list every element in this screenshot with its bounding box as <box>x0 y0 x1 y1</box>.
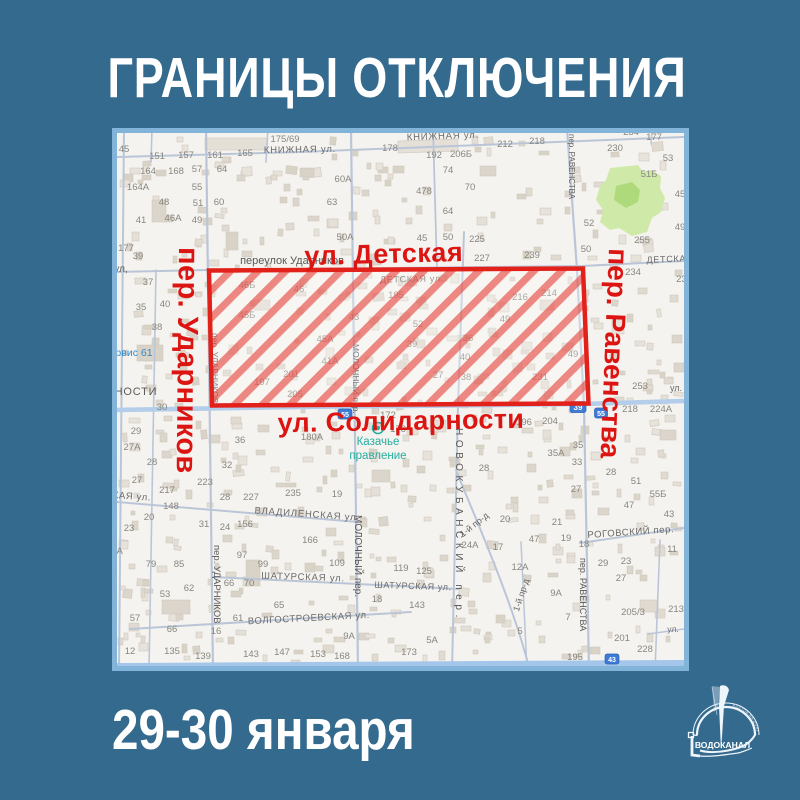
svg-text:18: 18 <box>372 594 383 605</box>
svg-text:51Б: 51Б <box>641 169 658 180</box>
svg-text:70: 70 <box>244 578 255 589</box>
svg-text:60: 60 <box>214 197 225 208</box>
svg-text:32: 32 <box>222 460 233 471</box>
svg-text:173: 173 <box>401 647 417 658</box>
svg-text:151: 151 <box>149 151 165 162</box>
svg-text:50: 50 <box>581 244 592 255</box>
svg-text:21: 21 <box>552 517 563 528</box>
svg-text:164: 164 <box>140 166 156 177</box>
svg-text:218: 218 <box>529 136 545 147</box>
svg-text:29: 29 <box>598 558 609 569</box>
svg-text:31: 31 <box>199 519 210 530</box>
svg-text:9А: 9А <box>343 631 355 642</box>
svg-text:НОВОКУБАНСКИЙ пер.: НОВОКУБАНСКИЙ пер. <box>453 428 466 622</box>
svg-text:235: 235 <box>285 488 301 499</box>
svg-text:7: 7 <box>565 612 570 623</box>
svg-text:35А: 35А <box>548 448 566 459</box>
svg-text:168: 168 <box>334 651 350 662</box>
svg-text:19: 19 <box>332 489 343 500</box>
svg-text:99: 99 <box>258 559 269 570</box>
svg-text:55Б: 55Б <box>650 489 667 500</box>
svg-text:230: 230 <box>607 143 623 154</box>
svg-text:ГРАНИЦЫ ОТКЛЮЧЕНИЯ: ГРАНИЦЫ ОТКЛЮЧЕНИЯ <box>107 46 686 109</box>
svg-text:227: 227 <box>474 253 490 264</box>
svg-text:23: 23 <box>124 523 135 534</box>
svg-text:28: 28 <box>220 492 231 503</box>
svg-text:28: 28 <box>606 467 617 478</box>
svg-text:153: 153 <box>310 649 326 660</box>
svg-text:195: 195 <box>567 652 583 663</box>
svg-text:ВОДОКАНАЛ: ВОДОКАНАЛ <box>695 740 750 750</box>
svg-text:пер. РАВЕНСТВА: пер. РАВЕНСТВА <box>578 558 588 631</box>
svg-text:37: 37 <box>143 277 154 288</box>
svg-text:33: 33 <box>572 457 583 468</box>
svg-text:27: 27 <box>571 484 582 495</box>
svg-text:НОСТИ: НОСТИ <box>115 386 158 398</box>
svg-text:ул.: ул. <box>670 383 682 393</box>
svg-text:пер. УДАРНИКОВ: пер. УДАРНИКОВ <box>211 545 222 624</box>
svg-text:45: 45 <box>119 144 130 155</box>
svg-text:178: 178 <box>382 143 398 154</box>
svg-text:224А: 224А <box>650 404 673 415</box>
svg-text:12А: 12А <box>512 562 530 573</box>
svg-text:19: 19 <box>561 533 572 544</box>
svg-text:225: 225 <box>469 234 485 245</box>
svg-text:45: 45 <box>675 189 686 200</box>
svg-text:46А: 46А <box>165 213 183 224</box>
svg-text:Казачье: Казачье <box>357 436 400 448</box>
svg-text:49: 49 <box>192 215 203 226</box>
svg-text:79: 79 <box>146 559 157 570</box>
svg-text:239: 239 <box>524 250 540 261</box>
svg-text:201: 201 <box>614 633 630 644</box>
svg-text:пер. Ударников: пер. Ударников <box>170 247 204 474</box>
svg-text:164А: 164А <box>127 182 150 193</box>
svg-text:МОЛОЧНЫЙ пер.: МОЛОЧНЫЙ пер. <box>352 515 365 597</box>
svg-text:24А: 24А <box>462 540 480 551</box>
svg-text:109: 109 <box>329 558 345 569</box>
svg-text:53: 53 <box>160 589 171 600</box>
svg-text:47: 47 <box>529 534 540 545</box>
svg-text:161: 161 <box>207 150 223 161</box>
svg-text:192: 192 <box>426 150 442 161</box>
svg-text:64: 64 <box>443 206 454 217</box>
svg-text:17: 17 <box>493 542 504 553</box>
svg-text:70: 70 <box>465 182 476 193</box>
svg-text:60А: 60А <box>335 174 353 185</box>
svg-text:253: 253 <box>632 381 648 392</box>
svg-text:135: 135 <box>164 646 180 657</box>
svg-text:206Б: 206Б <box>450 149 472 160</box>
svg-text:228: 228 <box>637 644 653 655</box>
svg-text:255: 255 <box>634 235 650 246</box>
svg-text:43: 43 <box>608 657 616 664</box>
svg-text:20: 20 <box>144 512 155 523</box>
svg-text:27: 27 <box>616 573 627 584</box>
svg-text:ул. Детская: ул. Детская <box>304 237 463 271</box>
svg-text:36: 36 <box>235 435 246 446</box>
svg-text:9А: 9А <box>550 588 562 599</box>
svg-text:40: 40 <box>160 299 171 310</box>
svg-text:16: 16 <box>211 626 222 637</box>
svg-text:166: 166 <box>302 535 318 546</box>
svg-text:28: 28 <box>147 457 158 468</box>
svg-text:74: 74 <box>443 165 454 176</box>
svg-text:29: 29 <box>131 426 142 437</box>
svg-text:204: 204 <box>542 416 558 427</box>
svg-text:38: 38 <box>152 322 163 333</box>
svg-text:КНИЖНАЯ ул.: КНИЖНАЯ ул. <box>264 144 336 156</box>
svg-text:27А: 27А <box>124 442 142 453</box>
svg-text:41: 41 <box>136 215 147 226</box>
svg-text:5А: 5А <box>426 635 438 646</box>
svg-text:35: 35 <box>136 302 147 313</box>
svg-text:52: 52 <box>584 218 595 229</box>
svg-text:177: 177 <box>646 132 662 143</box>
svg-text:66: 66 <box>167 624 178 635</box>
svg-text:ул. Солидарности: ул. Солидарности <box>277 404 524 438</box>
svg-text:53: 53 <box>663 153 674 164</box>
svg-text:48: 48 <box>159 197 170 208</box>
svg-text:139: 139 <box>195 651 211 662</box>
svg-text:143: 143 <box>243 649 259 660</box>
svg-text:55: 55 <box>192 182 203 193</box>
svg-text:478: 478 <box>416 186 432 197</box>
svg-text:157: 157 <box>178 150 194 161</box>
svg-text:43: 43 <box>664 509 675 520</box>
svg-text:28: 28 <box>479 463 490 474</box>
svg-text:156: 156 <box>237 519 253 530</box>
svg-text:119: 119 <box>393 563 408 574</box>
svg-text:205/3: 205/3 <box>621 607 645 618</box>
svg-text:рвис 61: рвис 61 <box>115 347 152 359</box>
svg-text:97: 97 <box>237 550 248 561</box>
svg-text:177: 177 <box>118 243 134 254</box>
svg-text:49: 49 <box>675 222 686 233</box>
svg-text:35: 35 <box>573 440 584 451</box>
svg-text:66: 66 <box>224 578 235 589</box>
svg-text:212: 212 <box>497 139 513 150</box>
svg-text:27: 27 <box>132 475 143 486</box>
svg-text:5: 5 <box>517 626 522 637</box>
svg-text:пер. РАВЕНСТВА: пер. РАВЕНСТВА <box>567 134 576 200</box>
svg-text:57: 57 <box>130 613 141 624</box>
svg-text:правление: правление <box>349 450 406 462</box>
svg-text:125: 125 <box>416 566 432 577</box>
svg-text:29-30 января: 29-30 января <box>112 698 415 762</box>
svg-text:223: 223 <box>197 477 213 488</box>
svg-text:143: 143 <box>409 600 425 611</box>
svg-text:12: 12 <box>125 646 136 657</box>
svg-text:51: 51 <box>193 198 204 209</box>
svg-text:65: 65 <box>274 600 285 611</box>
svg-text:63: 63 <box>327 197 338 208</box>
svg-text:165: 165 <box>237 148 253 159</box>
svg-text:20: 20 <box>500 514 511 525</box>
svg-text:217: 217 <box>159 485 175 496</box>
svg-text:148: 148 <box>163 501 179 512</box>
svg-text:213: 213 <box>668 604 684 615</box>
svg-text:62: 62 <box>184 583 195 594</box>
svg-text:39: 39 <box>133 251 144 262</box>
svg-text:ул.: ул. <box>667 624 678 634</box>
svg-text:175/69: 175/69 <box>270 134 299 145</box>
svg-text:85: 85 <box>174 559 185 570</box>
svg-text:61: 61 <box>233 613 244 624</box>
svg-text:64: 64 <box>217 164 228 175</box>
svg-text:168: 168 <box>168 166 184 177</box>
svg-text:30: 30 <box>157 402 168 413</box>
svg-text:57: 57 <box>192 164 203 175</box>
svg-text:18: 18 <box>579 539 590 550</box>
svg-text:24: 24 <box>220 522 231 533</box>
svg-text:23: 23 <box>621 556 632 567</box>
svg-text:51: 51 <box>631 476 642 487</box>
svg-text:147: 147 <box>274 647 290 658</box>
svg-text:47: 47 <box>624 500 635 511</box>
svg-text:227: 227 <box>243 492 259 503</box>
svg-text:11: 11 <box>667 544 677 555</box>
